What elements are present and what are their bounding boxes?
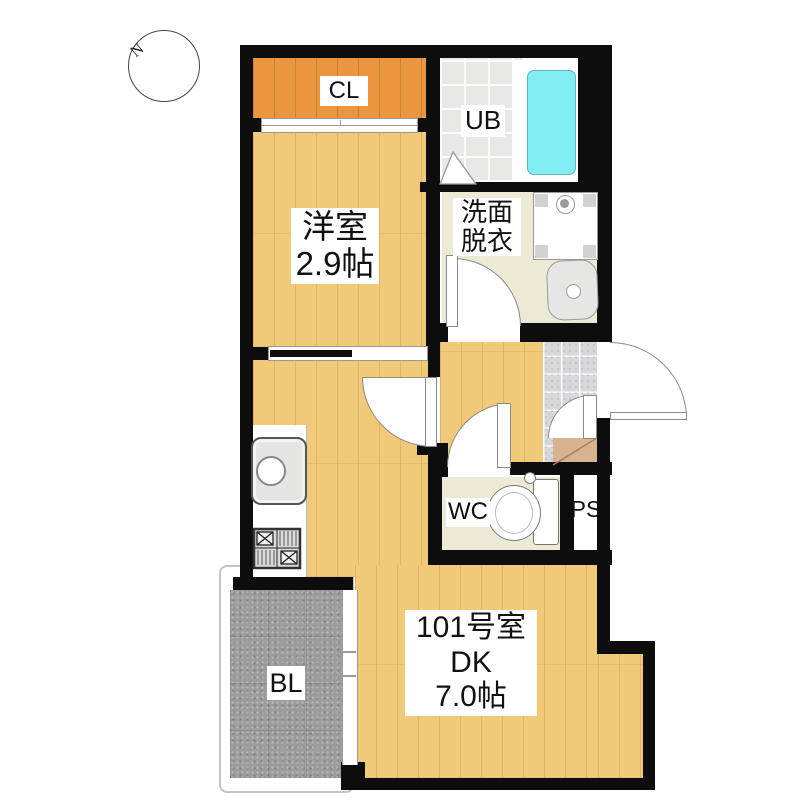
kitchen-faucet xyxy=(256,456,286,486)
balcony-text: BL xyxy=(269,668,302,698)
ps-text: PS xyxy=(571,497,602,523)
label-ps: PS xyxy=(570,496,602,524)
washing-machine-pan xyxy=(533,192,598,260)
wall-top-right-chunk xyxy=(578,45,612,192)
wall-right-mid xyxy=(597,418,610,654)
label-unit-bath: UB xyxy=(461,105,505,137)
wall-washroom-south-left xyxy=(426,323,448,342)
unit-bath-text: UB xyxy=(465,106,501,135)
label-wc: WC xyxy=(446,498,490,527)
entrance-door-arc xyxy=(610,342,687,419)
dk-area: 7.0帖 xyxy=(435,680,507,715)
westroom-opening-black-bar xyxy=(270,350,352,357)
balcony-window-tick-2 xyxy=(337,675,356,677)
washroom-line1: 洗面 xyxy=(461,198,513,227)
wall-right-upper xyxy=(597,192,612,342)
wc-door-leaf xyxy=(497,403,511,468)
closet-text: CL xyxy=(329,78,360,105)
compass xyxy=(128,30,200,102)
label-balcony: BL xyxy=(267,666,305,700)
bathtub xyxy=(527,70,576,175)
balcony-window xyxy=(342,590,358,765)
western-room-name: 洋室 xyxy=(302,209,368,246)
toilet-bowl-inner xyxy=(495,492,533,534)
label-dk: 101号室 DK 7.0帖 xyxy=(405,610,537,716)
label-closet: CL xyxy=(320,76,368,106)
wall-dk-door-stub xyxy=(428,360,440,377)
western-room-area: 2.9帖 xyxy=(296,246,375,283)
wall-westroom-bath xyxy=(426,58,440,360)
entrance-door-leaf xyxy=(610,412,687,420)
dk-unit-number: 101号室 xyxy=(416,611,526,646)
entrance-step xyxy=(553,437,597,465)
washroom-door-leaf xyxy=(446,255,458,327)
closet-sliding-door xyxy=(261,118,418,133)
label-washroom: 洗面 脱衣 xyxy=(453,198,521,256)
wall-wc-south xyxy=(428,550,612,565)
wall-bottom xyxy=(341,778,655,790)
washbasin-drain xyxy=(566,284,581,299)
dk-floor-step-out xyxy=(598,654,643,778)
entrance-inner-door-leaf xyxy=(583,395,597,439)
wc-text: WC xyxy=(448,499,488,526)
wall-right-lower xyxy=(643,647,655,790)
wall-kitchen-balcony xyxy=(233,577,353,590)
dk-type: DK xyxy=(450,646,492,681)
wall-wc-west xyxy=(428,455,442,565)
wall-washroom-south-right xyxy=(520,323,597,342)
wall-bath-south xyxy=(420,182,598,192)
dk-door-leaf xyxy=(425,377,437,447)
toilet-button xyxy=(524,472,536,484)
wall-cl-stub-left xyxy=(253,118,261,132)
floor-plan: N CL UB 洋室 2.9帖 洗面 脱衣 WC PS 101号室 DK 7.0… xyxy=(0,0,800,800)
wall-top xyxy=(240,45,612,58)
balcony-window-tick-1 xyxy=(337,651,356,653)
label-western-room: 洋室 2.9帖 xyxy=(291,208,379,284)
washroom-line2: 脱衣 xyxy=(461,227,513,256)
